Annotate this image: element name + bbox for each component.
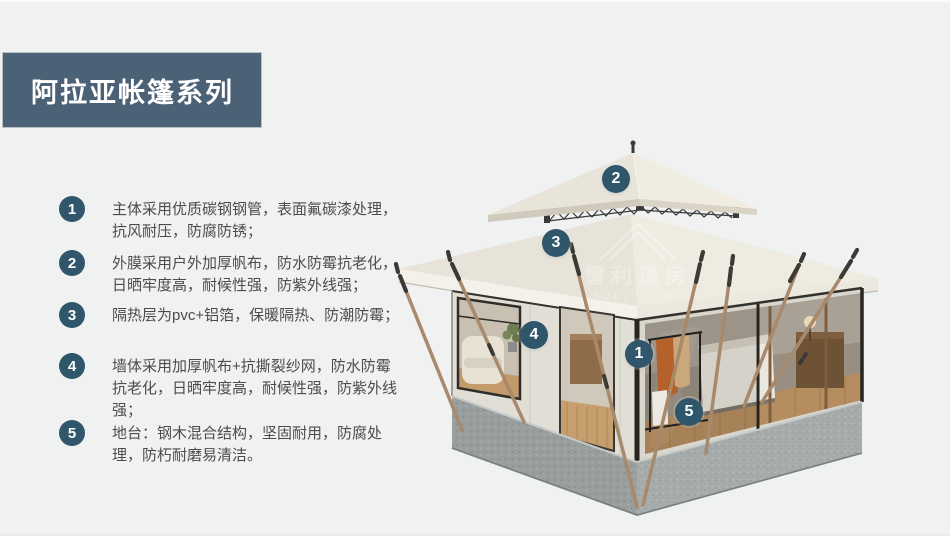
feature-badge-4: 4 [59, 353, 85, 379]
feature-badge-2: 2 [59, 250, 85, 276]
roof-finial-icon [631, 141, 636, 154]
feature-item-3: 3 隔热层为pvc+铝箔，保暖隔热、防潮防霉； [59, 305, 409, 328]
feature-badge-3: 3 [59, 302, 85, 328]
tent-marker-5: 5 [675, 398, 703, 426]
feature-item-4: 4 墙体采用加厚帆布+抗撕裂纱网，防水防霉抗老化，日晒牢度高，耐候性强，防紫外线… [59, 356, 409, 422]
left-doorway [557, 302, 619, 457]
feature-text-3: 隔热层为pvc+铝箔，保暖隔热、防潮防霉； [112, 305, 404, 327]
watermark-cn: 雪利篷房 [584, 264, 692, 288]
feature-badge-1: 1 [59, 196, 85, 222]
watermark-en: XUELI TENT [593, 291, 683, 302]
tent-marker-2: 2 [602, 165, 630, 193]
feature-text-1: 主体采用优质碳钢钢管，表面氟碳漆处理，抗风耐压，防腐防锈； [112, 199, 404, 243]
tent-marker-3: 3 [542, 229, 570, 257]
feature-badge-5: 5 [59, 420, 85, 446]
feature-item-5: 5 地台：钢木混合结构，坚固耐用，防腐处理，防朽耐磨易清洁。 [59, 423, 409, 467]
tent-marker-1: 1 [625, 340, 653, 368]
page-title: 阿拉亚帐篷系列 [31, 71, 234, 110]
feature-text-5: 地台：钢木混合结构，坚固耐用，防腐处理，防朽耐磨易清洁。 [112, 423, 404, 467]
slide: 雪利篷房 XUELI TENT 阿拉亚帐篷系列 1 主体采用优质碳钢钢管，表面氟… [0, 0, 950, 534]
feature-text-2: 外膜采用户外加厚帆布，防水防霉抗老化，日晒牢度高，耐候性强，防紫外线强； [112, 253, 404, 297]
tent-marker-4: 4 [520, 321, 548, 349]
title-box: 阿拉亚帐篷系列 [2, 52, 262, 128]
feature-item-2: 2 外膜采用户外加厚帆布，防水防霉抗老化，日晒牢度高，耐候性强，防紫外线强； [59, 253, 409, 297]
feature-item-1: 1 主体采用优质碳钢钢管，表面氟碳漆处理，抗风耐压，防腐防锈； [59, 199, 409, 243]
feature-text-4: 墙体采用加厚帆布+抗撕裂纱网，防水防霉抗老化，日晒牢度高，耐候性强，防紫外线强； [112, 356, 404, 422]
